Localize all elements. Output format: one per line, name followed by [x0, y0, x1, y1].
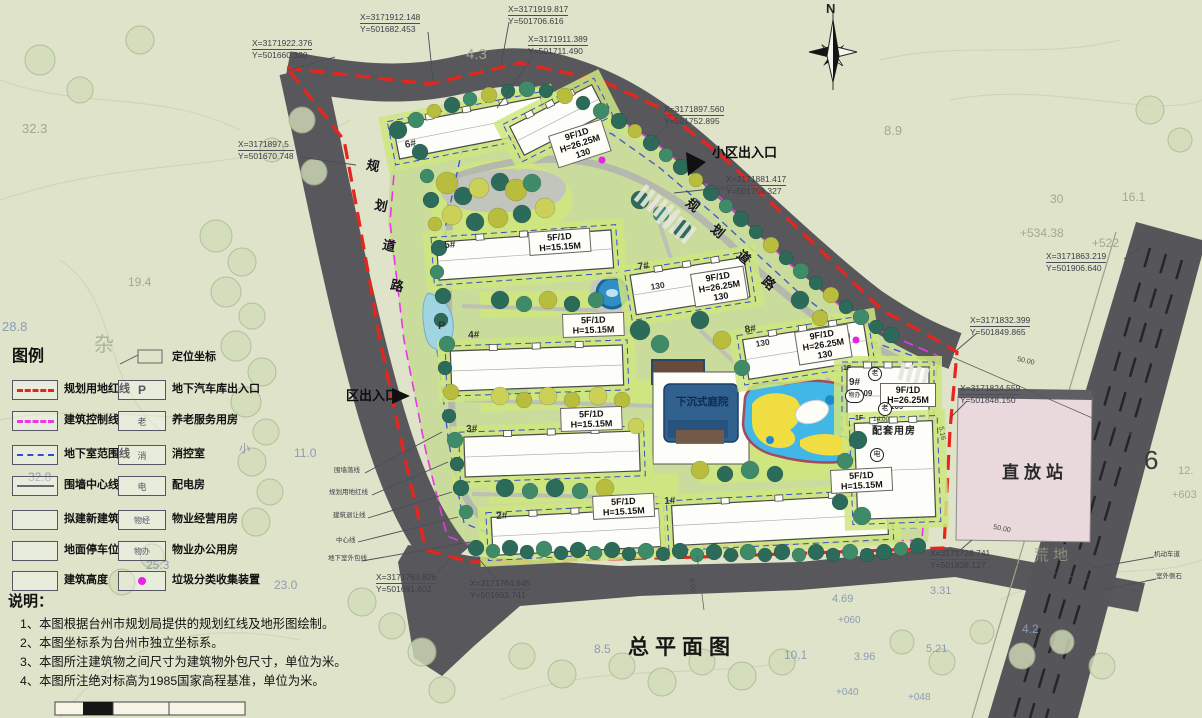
legend-symbol: 老 [118, 411, 166, 431]
topo-label: +534.38 [1020, 227, 1064, 240]
entrance-label: 区出入口 [346, 389, 398, 403]
setback-label: 中心线 [336, 537, 356, 544]
coordinate-label: X=3171881.417Y=501758.327 [726, 174, 786, 197]
legend-label: 地面停车位 [64, 544, 119, 556]
area-label: 配套用房 [872, 426, 916, 437]
coordinate-label: X=3171919.817Y=501706.616 [508, 4, 568, 27]
annotation: 1F [843, 365, 851, 373]
topo-label: 3.96 [854, 651, 875, 663]
legend-label: 消控室 [172, 448, 205, 460]
scale-bar [55, 702, 245, 715]
note-line: 2、本图坐标系为台州市独立坐标系。 [20, 637, 224, 651]
building-name: 9# [849, 377, 860, 388]
topo-label: 30 [1050, 193, 1063, 206]
topo-label: +603 [1172, 489, 1197, 501]
edge-label: 室外侧石 [1156, 573, 1182, 580]
topo-label: 16.1 [1122, 191, 1145, 204]
topo-label: 10.1 [784, 649, 807, 662]
topo-label: 4.2 [1022, 623, 1039, 636]
setback-label: 地下室外包线 [328, 555, 367, 562]
annotation: 小 [239, 443, 250, 455]
building-name: 3# [466, 424, 478, 435]
site-plan-page: 图例 说明： 总平面图 N const data = JSON.parse(do… [0, 0, 1202, 718]
legend-symbol: P [118, 380, 166, 400]
legend-label: 垃圾分类收集装置 [172, 574, 260, 586]
building-spec: 5F/1DH=15.15M [830, 467, 893, 494]
setback-label: 建筑退让线 [333, 512, 366, 519]
note-line: 3、本图所注建筑物之间尺寸为建筑物外包尺寸，单位为米。 [20, 656, 347, 670]
topo-label: +040 [836, 687, 859, 698]
legend-label: 养老服务用房 [172, 414, 238, 426]
topo-label: 32.3 [22, 122, 47, 136]
topo-label: 8.9 [884, 124, 902, 138]
waste-dot [599, 157, 606, 164]
topo-label: 19.4 [128, 276, 151, 289]
topo-label: 4.3 [466, 47, 487, 64]
topo-label: 3.31 [930, 585, 951, 597]
legend-swatch [12, 476, 58, 496]
legend-label: 拟建新建筑 [64, 513, 119, 525]
coordinate-label: X=3171863.219Y=501906.640 [1046, 251, 1106, 274]
building-spec: 5F/1DH=15.15M [560, 406, 623, 432]
edge-label: 机动车道 [1154, 551, 1180, 558]
coordinate-label: X=3171897.560Y=501752.895 [664, 104, 724, 127]
coordinate-label: X=3171912.148Y=501682.453 [360, 12, 420, 35]
building-name: 7# [637, 260, 650, 273]
legend-symbol [118, 571, 166, 591]
area-label: 下沉式庭院 [676, 397, 729, 409]
legend-label: 定位坐标 [172, 351, 216, 363]
building-slab [450, 420, 653, 489]
legend-symbol: 物办 [118, 541, 166, 561]
legend-label: 物业办公用房 [172, 544, 238, 556]
building-name: 8# [744, 323, 757, 336]
topo-label: +522 [1092, 237, 1119, 250]
topo-label: +048 [908, 692, 931, 703]
area-label: 荒地 [1034, 548, 1072, 565]
coordinate-label: X=3171922.376Y=501660.320 [252, 38, 312, 61]
legend-swatch [12, 541, 58, 561]
note-line: 1、本图根据台州市规划局提供的规划红线及地形图绘制。 [20, 618, 334, 632]
coordinate-label: X=3171728.741Y=501838.127 [930, 548, 990, 571]
topo-label: 12. [1178, 465, 1193, 477]
legend-label: 物业经营用房 [172, 513, 238, 525]
entrance-label: 小区出入口 [712, 146, 777, 160]
topo-label: 4.69 [832, 593, 853, 605]
topo-label: 23.0 [274, 579, 297, 592]
coordinate-label: X=3171911.389Y=501711.490 [528, 34, 588, 57]
legend-label: 建筑高度 [64, 574, 108, 586]
north-label: N [826, 2, 835, 16]
page-title: 总平面图 [628, 636, 736, 659]
annotation: 14.00 [873, 416, 889, 423]
coordinate-label: X=3171832.399Y=501849.865 [970, 315, 1030, 338]
topo-label: 8.5 [594, 643, 611, 656]
note-line: 4、本图所注绝对标高为1985国家高程基准，单位为米。 [20, 675, 325, 689]
area-label: 直放站 [1002, 464, 1068, 483]
legend-swatch [12, 411, 58, 431]
coordinate-label: X=3171824.559Y=501848.150 [960, 383, 1020, 406]
building-slab [437, 334, 637, 403]
area-label: 杂 [94, 334, 114, 356]
building-name: 4# [468, 330, 480, 341]
building-spec: 5F/1DH=15.15M [592, 493, 655, 520]
legend-label: 围墙中心线 [64, 479, 119, 491]
legend-label: 地下汽车库出入口 [172, 383, 260, 395]
topo-label: 6 [1144, 446, 1158, 475]
legend-label: 建筑控制线 [64, 414, 119, 426]
circled-mark: 电 [870, 448, 884, 462]
legend-symbol: 电 [118, 476, 166, 496]
topo-label: 5.21 [926, 643, 947, 655]
legend-symbol: 消 [118, 445, 166, 465]
legend-swatch [12, 445, 58, 465]
circled-mark: 物办 [845, 389, 864, 403]
legend-swatch [12, 510, 58, 530]
setback-label: 围墙落线 [334, 467, 360, 474]
topo-label: 11.0 [294, 447, 316, 460]
circled-mark: 老 [878, 402, 892, 416]
legend-symbol: 物经 [118, 510, 166, 530]
building-name: 1# [664, 495, 676, 507]
waste-dot [853, 337, 860, 344]
annotation: P [438, 320, 445, 332]
topo-label: +060 [838, 615, 861, 626]
legend-swatch [12, 380, 58, 400]
legend-heading: 图例 [12, 348, 44, 366]
setback-label: 规划用地红线 [329, 489, 368, 496]
building-name: 6# [404, 138, 417, 151]
building-name: 5# [444, 239, 456, 251]
legend-swatch [12, 571, 58, 591]
topo-label: 28.8 [2, 320, 27, 334]
legend-symbol [118, 348, 164, 366]
notes-heading: 说明： [8, 594, 53, 611]
legend-label: 配电房 [172, 479, 205, 491]
circled-mark: 老 [868, 367, 882, 381]
coordinate-label: X=3171897.5Y=501670.748 [238, 139, 294, 162]
building-spec: 5F/1DH=15.15M [562, 312, 625, 338]
building-name: 2# [496, 510, 508, 522]
building-spec: 5F/1DH=15.15M [528, 228, 592, 256]
coordinate-label: X=3171763.826Y=501691.602 [376, 572, 436, 595]
coordinate-label: X=3171764.645Y=501693.741 [470, 578, 530, 601]
annotation: 1F [855, 415, 863, 423]
